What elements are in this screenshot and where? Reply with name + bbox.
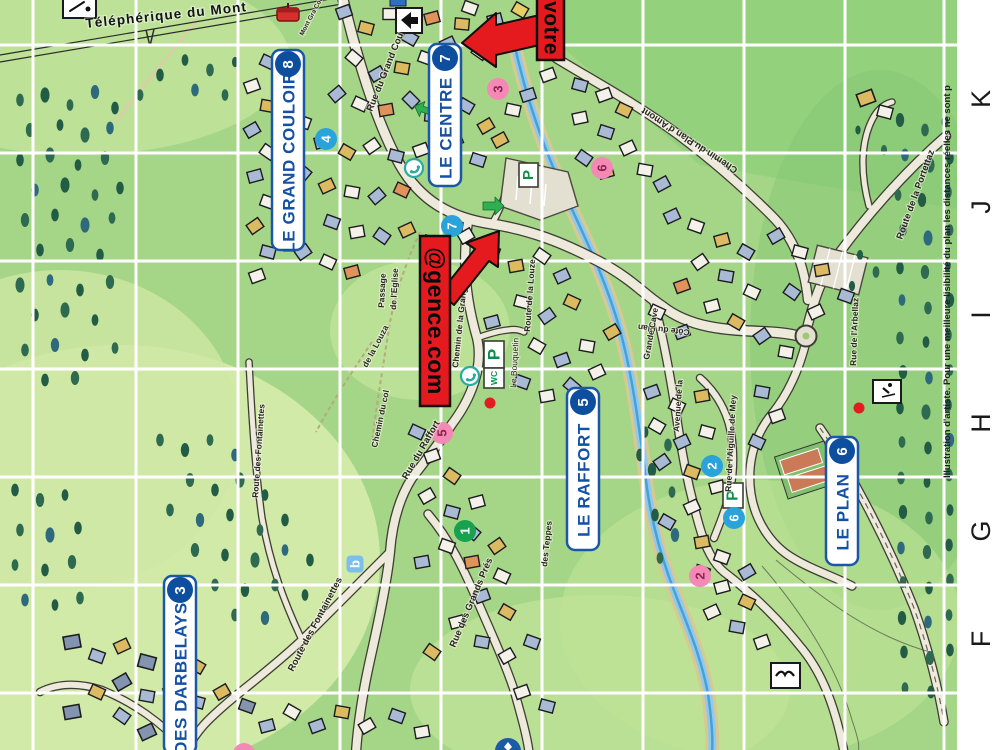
tree: [62, 489, 69, 501]
tree: [16, 94, 24, 107]
building: [383, 9, 397, 20]
tree: [16, 524, 24, 537]
tree: [92, 189, 99, 201]
tree: [109, 212, 116, 224]
tree: [76, 284, 84, 297]
tree: [80, 217, 89, 232]
tree: [45, 527, 54, 542]
building: [378, 103, 394, 116]
tree: [900, 646, 908, 659]
tree: [67, 99, 74, 111]
marker-pink-2: 2: [689, 565, 711, 587]
tree: [60, 302, 69, 317]
tree: [66, 238, 74, 252]
tree: [926, 651, 934, 665]
tree: [671, 528, 679, 542]
svg-text:3: 3: [172, 586, 189, 594]
building: [729, 620, 745, 633]
grid-letter-j: J: [966, 200, 996, 214]
building: [63, 704, 81, 719]
poi-dot: [485, 398, 496, 409]
tree: [191, 84, 199, 97]
tree: [925, 512, 933, 525]
street-label: Passage: [376, 273, 388, 308]
tree: [96, 249, 104, 262]
tree: [250, 552, 259, 567]
tree: [261, 611, 269, 625]
tree: [849, 281, 855, 291]
tree: [41, 564, 49, 577]
poi-dot: [854, 403, 865, 414]
svg-text:LE GRAND COULOIR: LE GRAND COULOIR: [280, 71, 299, 252]
tree: [899, 294, 906, 306]
svg-text:8: 8: [280, 60, 297, 68]
tree: [81, 349, 89, 362]
tree: [68, 555, 76, 569]
tree: [106, 122, 114, 135]
svg-text:votre: votre: [540, 1, 563, 55]
building: [718, 269, 734, 282]
building: [539, 389, 555, 402]
tree: [282, 544, 289, 556]
tree: [898, 611, 906, 625]
building: [394, 61, 410, 74]
tree: [946, 644, 954, 657]
tree: [899, 505, 907, 519]
svg-text:@gence.com: @gence.com: [423, 247, 449, 395]
svg-text:7: 7: [437, 54, 454, 62]
building: [637, 163, 653, 176]
tree: [137, 89, 144, 101]
tree: [257, 524, 264, 536]
tree: [947, 504, 954, 516]
skier-box-icon: [873, 380, 901, 403]
tree: [196, 513, 204, 527]
parking-sign-1: P: [519, 163, 538, 187]
tree: [57, 119, 64, 131]
tree: [302, 589, 309, 601]
building: [694, 389, 710, 402]
svg-text:4: 4: [319, 135, 334, 143]
svg-text:WC: WC: [489, 371, 499, 385]
district-label-darbelays: DES DARBELAYS 3: [164, 576, 196, 750]
tree: [51, 209, 59, 222]
tree: [76, 592, 84, 605]
svg-text:P: P: [485, 349, 504, 360]
grid-letter-k: K: [966, 90, 996, 108]
tree: [306, 554, 314, 567]
tree: [226, 509, 234, 522]
svg-text:7: 7: [445, 222, 460, 229]
tree: [15, 277, 24, 292]
building: [344, 185, 360, 198]
tree: [71, 371, 79, 385]
svg-text:6: 6: [595, 164, 610, 171]
tree: [45, 147, 54, 162]
tree: [896, 113, 904, 127]
tree: [924, 616, 932, 629]
marker-blue-2: 2: [701, 455, 723, 477]
tree: [191, 543, 199, 557]
svg-text:DES DARBELAYS: DES DARBELAYS: [172, 602, 191, 750]
tree: [11, 484, 19, 497]
svg-text:5: 5: [575, 398, 592, 406]
tree: [47, 274, 54, 286]
tree: [75, 159, 82, 171]
tree: [899, 365, 907, 379]
tree: [873, 266, 880, 278]
svg-text:P: P: [520, 170, 537, 180]
tree: [923, 336, 930, 348]
svg-text:6: 6: [727, 514, 742, 521]
building: [778, 345, 794, 358]
building: [464, 555, 480, 568]
tree: [186, 473, 194, 487]
svg-text:2: 2: [705, 462, 720, 469]
tree: [896, 262, 904, 275]
building: [505, 103, 521, 117]
marker-blue-4: 4: [315, 128, 337, 150]
building: [694, 535, 710, 548]
tree: [36, 493, 44, 507]
bird-box-icon: [771, 663, 800, 688]
tree: [897, 542, 905, 555]
district-label-raffort: LE RAFFORT 5: [567, 388, 599, 550]
tree: [91, 85, 99, 99]
grid-letter-g: G: [966, 520, 996, 541]
svg-text:3: 3: [491, 85, 506, 92]
marker-blue-7: 7: [441, 215, 463, 237]
tree: [211, 484, 219, 497]
tree: [924, 302, 932, 315]
tree: [206, 64, 214, 77]
tree: [21, 594, 29, 607]
svg-text:6: 6: [834, 447, 851, 455]
tree: [895, 189, 902, 201]
building: [579, 339, 595, 352]
tree: [945, 539, 953, 552]
tree: [925, 372, 933, 385]
sign-icon: [390, 0, 406, 6]
svg-text:1: 1: [458, 527, 473, 534]
tree: [80, 127, 89, 142]
building: [334, 705, 350, 718]
tree: [921, 265, 929, 279]
parking-wc-signs: P WC: [484, 341, 504, 388]
building: [754, 385, 770, 398]
grid-letter-f: F: [966, 631, 996, 648]
marker-pink-3: 3: [487, 78, 509, 100]
tree: [657, 552, 664, 564]
tree: [111, 102, 119, 115]
arrow-box-icon: [396, 8, 422, 33]
tree: [92, 314, 99, 326]
district-label-grand-couloir: LE GRAND COULOIR 8: [272, 50, 304, 253]
tree: [41, 374, 49, 387]
tree: [262, 489, 269, 501]
svg-text:LE CENTRE: LE CENTRE: [437, 77, 456, 179]
building: [508, 259, 524, 272]
tree: [40, 87, 49, 102]
building: [814, 263, 830, 276]
svg-text:2: 2: [693, 572, 708, 579]
tree: [12, 559, 19, 571]
map-canvas: P P WC P 4 7 2 6 3: [0, 0, 1000, 750]
building: [414, 725, 430, 738]
tree: [664, 439, 672, 452]
tree: [51, 338, 59, 352]
tree: [923, 545, 931, 559]
grid-letter-i: I: [966, 311, 996, 319]
tree: [921, 404, 930, 419]
tree: [36, 244, 44, 257]
tree: [16, 154, 24, 167]
marker-square-b: b: [347, 556, 364, 573]
tree: [669, 486, 676, 498]
svg-text:LE RAFFORT: LE RAFFORT: [575, 423, 594, 537]
tree: [221, 549, 229, 562]
tree: [181, 443, 189, 457]
grid-letter-h: H: [966, 413, 996, 433]
district-label-centre: LE CENTRE 7: [429, 44, 461, 186]
building: [349, 225, 365, 238]
building: [414, 555, 430, 568]
tree: [116, 182, 124, 195]
building: [474, 635, 490, 648]
tree: [921, 124, 929, 137]
svg-text:b: b: [348, 560, 363, 568]
tree: [651, 509, 659, 522]
tree: [21, 344, 29, 357]
illustrated-resort-map[interactable]: P P WC P 4 7 2 6 3: [0, 0, 1000, 750]
building: [63, 634, 81, 649]
tree: [923, 230, 932, 245]
building: [455, 18, 470, 30]
tree: [156, 69, 164, 82]
tree: [156, 434, 164, 447]
disclaimer-text: Illustration d'artiste. Pour une meilleu…: [942, 85, 953, 478]
marker-pink-6: 6: [591, 157, 613, 179]
tree: [924, 442, 932, 455]
tree: [182, 54, 189, 66]
tree: [106, 275, 114, 289]
tree: [74, 522, 82, 535]
tree: [896, 332, 904, 345]
tree: [21, 213, 29, 227]
building: [139, 689, 155, 702]
tree: [855, 126, 860, 135]
tree: [222, 89, 229, 101]
tree: [207, 434, 214, 446]
svg-text:LE PLAN: LE PLAN: [834, 474, 853, 551]
tree: [166, 504, 174, 517]
district-label-plan: LE PLAN 6: [826, 437, 858, 565]
tree: [112, 342, 119, 354]
tree: [60, 177, 69, 192]
tree: [857, 250, 863, 260]
marker-blue-6: 6: [723, 507, 745, 529]
marker-green-1: 1: [454, 520, 476, 542]
tree: [901, 149, 909, 162]
tree: [899, 436, 906, 448]
building: [572, 111, 588, 125]
tree: [52, 599, 59, 611]
tree: [281, 514, 289, 527]
tree: [946, 609, 953, 621]
